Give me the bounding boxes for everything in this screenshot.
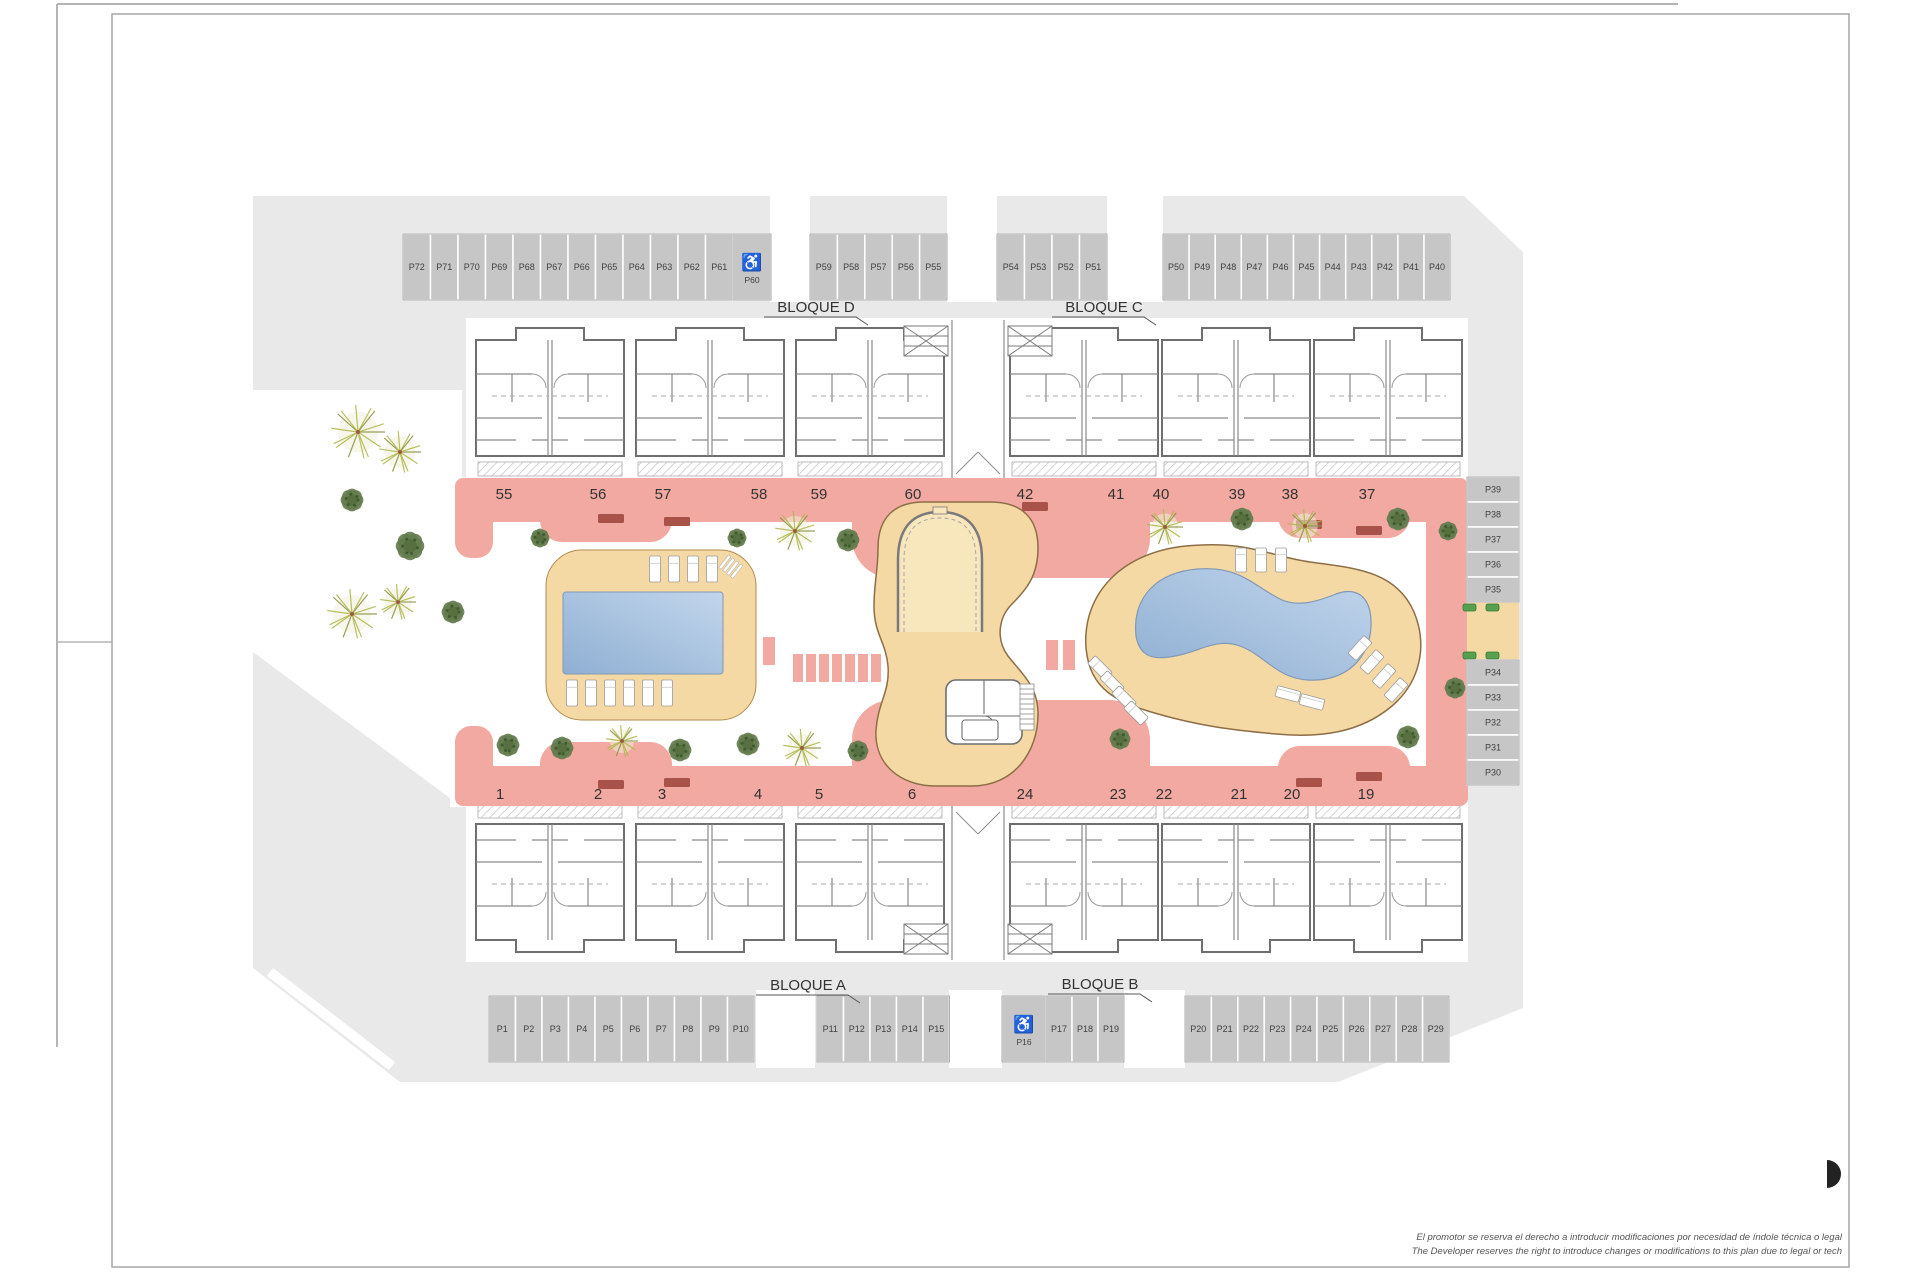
tree-speckle	[1235, 516, 1238, 519]
parking-stall-label: P54	[1003, 262, 1019, 272]
parking-stall-label: P60	[744, 275, 759, 285]
hedge	[1463, 652, 1476, 659]
tree-speckle	[1243, 523, 1246, 526]
tree-speckle	[1450, 526, 1453, 529]
parking-stall-label: P23	[1269, 1024, 1285, 1034]
parking-stall-label: P15	[928, 1024, 944, 1034]
walkway-top-endcap	[455, 478, 493, 558]
sun-lounger	[669, 556, 680, 582]
hedge	[1486, 652, 1499, 659]
tree-speckle	[850, 534, 853, 537]
tree-speckle	[740, 534, 743, 537]
unit-number: 20	[1284, 786, 1301, 803]
tree-speckle	[566, 748, 569, 751]
tree-speckle	[1409, 741, 1412, 744]
parking-stall-label: P3	[550, 1024, 561, 1034]
unit-number: 60	[905, 486, 922, 503]
apartment-unit-module-use	[636, 824, 784, 952]
parking-stall-label: P34	[1485, 668, 1501, 678]
tree-speckle	[1448, 686, 1451, 689]
apartment-unit-module	[476, 328, 624, 456]
parking-group-top-c: P54P53P52P51	[997, 234, 1107, 300]
disclaimer-line-en: The Developer reserves the right to intr…	[1412, 1245, 1842, 1259]
tree-speckle	[1391, 516, 1394, 519]
parking-stall-label: P2	[523, 1024, 534, 1034]
arched-court-gate	[933, 507, 947, 514]
parking-stall-label: P38	[1485, 510, 1501, 520]
parking-stall-label: P41	[1403, 262, 1419, 272]
terrace-strip	[798, 804, 942, 818]
tree-speckle	[1401, 734, 1404, 737]
tree-speckle	[1113, 738, 1116, 741]
parking-stall-label: P47	[1246, 262, 1262, 272]
stepping-stone	[819, 654, 829, 682]
tree-speckle	[1452, 681, 1455, 684]
tree-dark-icon	[1397, 726, 1420, 749]
tree-dark-icon	[737, 733, 760, 756]
sun-lounger-rect	[643, 680, 654, 706]
tree-speckle	[684, 750, 687, 753]
stairs-box	[1020, 684, 1034, 730]
parking-stall-label: P7	[656, 1024, 667, 1034]
tree-speckle	[1442, 530, 1445, 533]
tree-speckle	[1399, 523, 1402, 526]
stair-shaft	[904, 326, 948, 356]
parking-stall-label: P51	[1085, 262, 1101, 272]
tree-dark-icon	[848, 741, 869, 762]
terrace-strip	[638, 462, 782, 476]
tree-speckle	[862, 751, 865, 754]
parking-stall-label: P48	[1220, 262, 1236, 272]
parking-stall-label: P17	[1051, 1024, 1067, 1034]
site-plan-drawing: P72P71P70P69P68P67P66P65P64P63P62P61♿P60…	[0, 0, 1920, 1280]
stair-shaft	[1008, 326, 1052, 356]
tree-speckle	[458, 611, 461, 614]
sun-lounger	[586, 680, 597, 706]
tree-dark-icon	[837, 529, 860, 552]
parking-stall-label: P66	[574, 262, 590, 272]
bench	[664, 778, 690, 787]
hedge	[1463, 604, 1476, 611]
sun-lounger	[662, 680, 673, 706]
sun-lounger-rect	[650, 556, 661, 582]
parking-stall-label: P72	[409, 262, 425, 272]
parking-stall-label: P6	[629, 1024, 640, 1034]
tree-speckle	[1116, 733, 1119, 736]
sun-lounger	[605, 680, 616, 706]
tree-speckle	[504, 738, 507, 741]
parking-stall-label: P14	[902, 1024, 918, 1034]
tree-speckle	[1247, 518, 1250, 521]
pool-house-stairs	[1020, 684, 1034, 730]
parking-group-bottom-b: P11P12P13P14P15	[817, 996, 950, 1062]
tree-speckle	[542, 533, 545, 536]
tree-speckle	[851, 749, 854, 752]
stair-shaft	[1008, 924, 1052, 954]
parking-stall-label: P8	[682, 1024, 693, 1034]
tree-speckle	[405, 551, 408, 554]
parking-stall-label: P52	[1058, 262, 1074, 272]
sun-lounger-rect	[567, 680, 578, 706]
unit-number: 58	[751, 486, 768, 503]
entrance-corridor	[952, 806, 1004, 960]
tree-speckle	[508, 749, 511, 752]
sun-lounger	[688, 556, 699, 582]
tree-speckle	[682, 744, 685, 747]
bench	[664, 517, 690, 526]
tree-speckle	[745, 737, 748, 740]
tree-speckle	[504, 749, 507, 752]
tree-speckle	[743, 748, 746, 751]
driveway-gap	[770, 196, 810, 302]
tree-speckle	[558, 741, 561, 744]
tree-dark-icon	[669, 739, 692, 762]
parking-stall-label: P12	[849, 1024, 865, 1034]
terrace-strip	[1164, 804, 1308, 818]
terrace-strip	[1164, 462, 1308, 476]
unit-number: 56	[590, 486, 607, 503]
tree-trunk	[396, 600, 400, 604]
hedge	[1486, 604, 1499, 611]
tree-speckle	[1403, 740, 1406, 743]
tree-speckle	[543, 538, 546, 541]
tree-speckle	[676, 754, 679, 757]
parking-stall-label: P5	[603, 1024, 614, 1034]
unit-number: 41	[1108, 486, 1125, 503]
parking-stall-label: P65	[601, 262, 617, 272]
parking-stall-label: P26	[1349, 1024, 1365, 1034]
parking-stall-label: P9	[709, 1024, 720, 1034]
tree-speckle	[741, 742, 744, 745]
parking-group-bottom-d: P20P21P22P23P24P25P26P27P28P29	[1185, 996, 1449, 1062]
parking-stall-label: P21	[1217, 1024, 1233, 1034]
apartment-unit-module	[1162, 824, 1310, 952]
tree-trunk	[356, 430, 360, 434]
tree-dark-icon	[341, 489, 364, 512]
parking-stall-label: P59	[816, 262, 832, 272]
tree-speckle	[454, 616, 457, 619]
tree-speckle	[401, 545, 404, 548]
tree-speckle	[413, 539, 416, 542]
driveway-gap	[756, 990, 815, 1068]
tree-trunk	[620, 739, 624, 743]
tree-speckle	[673, 749, 676, 752]
tree-dark-icon	[1387, 508, 1410, 531]
parking-stall-label: P53	[1030, 262, 1046, 272]
parking-stall-label: P24	[1296, 1024, 1312, 1034]
tree-speckle	[676, 743, 679, 746]
bench	[1022, 502, 1048, 511]
tree-speckle	[349, 493, 352, 496]
parking-stall-label: P71	[436, 262, 452, 272]
apartment-unit-module	[1314, 824, 1462, 952]
tree-speckle	[450, 605, 453, 608]
parking-stall-label: P39	[1485, 485, 1501, 495]
tree-speckle	[751, 738, 754, 741]
parking-group-bottom-access: ♿P16	[1002, 996, 1046, 1062]
unit-number: 37	[1359, 486, 1376, 503]
bench	[1356, 772, 1382, 781]
parking-stall-label: P43	[1351, 262, 1367, 272]
tree-dark-icon	[497, 734, 520, 757]
parking-stall-label: P4	[576, 1024, 587, 1034]
bench	[1356, 526, 1382, 535]
left-pool	[563, 592, 723, 674]
unit-number: 22	[1156, 786, 1173, 803]
parking-stall-label: P1	[497, 1024, 508, 1034]
parking-stall-label: P33	[1485, 693, 1501, 703]
tree-speckle	[501, 744, 504, 747]
sun-lounger-rect	[707, 556, 718, 582]
tree-speckle	[534, 536, 537, 539]
block-label-bloque-a: BLOQUE A	[770, 977, 846, 994]
apartment-unit-module-use	[1314, 824, 1462, 952]
stepping-stone	[806, 654, 816, 682]
tree-speckle	[1401, 514, 1404, 517]
tree-speckle	[1444, 534, 1447, 537]
tree-speckle	[347, 503, 350, 506]
tree-trunk	[350, 612, 354, 616]
tree-speckle	[1448, 534, 1451, 537]
unit-number: 59	[811, 486, 828, 503]
sun-lounger-rect	[669, 556, 680, 582]
stepping-stone	[871, 654, 881, 682]
tree-speckle	[541, 541, 544, 544]
parking-stall-label: P61	[711, 262, 727, 272]
parking-stall-label: P29	[1428, 1024, 1444, 1034]
tree-speckle	[750, 748, 753, 751]
tree-speckle	[1451, 531, 1454, 534]
parking-stall-label: P67	[546, 262, 562, 272]
parking-stall-label: P10	[733, 1024, 749, 1034]
sun-lounger	[624, 680, 635, 706]
tree-speckle	[536, 541, 539, 544]
sun-lounger-rect	[688, 556, 699, 582]
tree-speckle	[345, 497, 348, 500]
tree-speckle	[1395, 512, 1398, 515]
sun-lounger-rect	[624, 680, 635, 706]
tree-speckle	[855, 744, 858, 747]
tree-speckle	[1411, 732, 1414, 735]
tree-dark-icon	[1231, 508, 1254, 531]
terrace-strip	[1316, 462, 1460, 476]
stepping-stone	[1046, 640, 1058, 670]
tree-trunk	[800, 746, 804, 750]
tree-speckle	[859, 754, 862, 757]
parking-stall-label: P32	[1485, 718, 1501, 728]
tree-dark-icon	[396, 532, 425, 561]
unit-number: 40	[1153, 486, 1170, 503]
tree-dark-icon	[1439, 522, 1458, 541]
stepping-stone	[858, 654, 868, 682]
tree-trunk	[793, 529, 797, 533]
terrace-strip	[478, 804, 622, 818]
unit-number: 19	[1358, 786, 1375, 803]
parking-stall-label: P28	[1401, 1024, 1417, 1034]
parking-stall-label: P30	[1485, 768, 1501, 778]
parking-stall-label: P45	[1299, 262, 1315, 272]
driveway-gap	[1107, 196, 1163, 302]
stepping-stone	[1063, 640, 1075, 670]
tree-speckle	[1444, 525, 1447, 528]
tree-speckle	[841, 539, 844, 542]
arched-court	[898, 512, 982, 632]
sun-lounger-rect	[1256, 548, 1267, 572]
parking-group-top-b: P59P58P57P56P55	[810, 234, 947, 300]
parking-stall-label: P63	[656, 262, 672, 272]
sun-lounger	[1256, 548, 1267, 572]
tree-speckle	[446, 609, 449, 612]
parking-stall-label: P37	[1485, 535, 1501, 545]
parking-stall-label: P68	[519, 262, 535, 272]
parking-stall-label: P69	[491, 262, 507, 272]
parking-stall-label: P31	[1485, 743, 1501, 753]
tree-dark-icon	[728, 529, 747, 548]
parking-stall-label: P42	[1377, 262, 1393, 272]
tree-speckle	[1451, 691, 1454, 694]
tree-speckle	[1122, 733, 1125, 736]
parking-stall-label: P22	[1243, 1024, 1259, 1034]
terrace-strip	[1012, 462, 1156, 476]
parking-stall-label: P16	[1016, 1037, 1031, 1047]
unit-number: 6	[908, 786, 916, 803]
parking-stall-label: P50	[1168, 262, 1184, 272]
tree-speckle	[1393, 522, 1396, 525]
stepping-stone	[832, 654, 842, 682]
terrace-strip	[798, 462, 942, 476]
unit-number: 1	[496, 786, 504, 803]
sun-lounger	[1236, 548, 1247, 572]
tree-speckle	[562, 752, 565, 755]
unit-number: 5	[815, 786, 823, 803]
sun-lounger-rect	[586, 680, 597, 706]
stair-shaft	[904, 924, 948, 954]
tree-speckle	[416, 546, 419, 549]
tree-speckle	[1120, 743, 1123, 746]
apartment-unit-module	[636, 824, 784, 952]
tree-speckle	[456, 607, 459, 610]
tree-speckle	[1124, 739, 1127, 742]
terrace-strip	[478, 462, 622, 476]
site-plan-page: P72P71P70P69P68P67P66P65P64P63P62P61♿P60…	[0, 0, 1920, 1280]
walkway-bottom-endcap	[455, 726, 493, 806]
unit-number: 24	[1017, 786, 1034, 803]
unit-number: 57	[655, 486, 672, 503]
unit-number: 3	[658, 786, 666, 803]
parking-stall-label: P62	[684, 262, 700, 272]
tree-speckle	[735, 532, 738, 535]
unit-number: 39	[1229, 486, 1246, 503]
tree-trunk	[1303, 524, 1307, 528]
stepping-stone	[845, 654, 855, 682]
pool-house-room	[962, 720, 998, 740]
sun-lounger-rect	[662, 680, 673, 706]
apartment-unit-module-use	[1162, 824, 1310, 952]
tree-speckle	[1116, 743, 1119, 746]
sun-lounger	[650, 556, 661, 582]
driveway-gap	[947, 196, 997, 302]
driveway-gap	[1124, 990, 1185, 1068]
tree-dark-icon	[1110, 729, 1131, 750]
parking-stall-label: P58	[843, 262, 859, 272]
tree-speckle	[738, 541, 741, 544]
tree-speckle	[512, 745, 515, 748]
parking-stall-label: P40	[1429, 262, 1445, 272]
apartment-unit-module	[1162, 328, 1310, 456]
parking-stall-label: P49	[1194, 262, 1210, 272]
tree-speckle	[848, 544, 851, 547]
driveway-gap	[949, 990, 1002, 1068]
terrace-strip	[1012, 804, 1156, 818]
parking-group-top-a-access: ♿P60	[733, 234, 771, 300]
parking-stall-label: P44	[1325, 262, 1341, 272]
tree-speckle	[854, 754, 857, 757]
tree-speckle	[555, 747, 558, 750]
tree-speckle	[680, 754, 683, 757]
sun-lounger	[567, 680, 578, 706]
tree-trunk	[398, 450, 402, 454]
tree-speckle	[353, 504, 356, 507]
tree-speckle	[860, 746, 863, 749]
tree-speckle	[564, 742, 567, 745]
tree-speckle	[1239, 512, 1242, 515]
parking-stall-label: P55	[925, 262, 941, 272]
parking-stall-label: P46	[1272, 262, 1288, 272]
tree-dark-icon	[442, 601, 465, 624]
parking-stall-label: P35	[1485, 585, 1501, 595]
parking-stall-label: P19	[1103, 1024, 1119, 1034]
tree-speckle	[1237, 522, 1240, 525]
unit-number: 42	[1017, 486, 1034, 503]
parking-stall-label: P70	[464, 262, 480, 272]
parking-stall-label: P56	[898, 262, 914, 272]
unit-number: 2	[594, 786, 602, 803]
parking-stall-label: P20	[1190, 1024, 1206, 1034]
tree-speckle	[844, 544, 847, 547]
stepping-stone	[763, 637, 775, 665]
disclaimer-line-es: El promotor se reserva el derecho a intr…	[1412, 1231, 1842, 1245]
sun-lounger-rect	[605, 680, 616, 706]
parking-stall-label: P25	[1322, 1024, 1338, 1034]
tree-speckle	[510, 739, 513, 742]
tree-trunk	[1163, 525, 1167, 529]
tree-speckle	[537, 532, 540, 535]
tree-speckle	[844, 533, 847, 536]
unit-number: 38	[1282, 486, 1299, 503]
tree-speckle	[1456, 691, 1459, 694]
tree-speckle	[852, 540, 855, 543]
tree-speckle	[732, 540, 735, 543]
unit-number: 55	[496, 486, 513, 503]
parking-stall-label: P64	[629, 262, 645, 272]
wheelchair-icon: ♿	[741, 252, 762, 272]
tree-speckle	[1403, 518, 1406, 521]
parking-stall-label: P27	[1375, 1024, 1391, 1034]
tree-speckle	[355, 495, 358, 498]
parking-stall-label: P57	[870, 262, 886, 272]
parking-group-right-upper: P39P38P37P36P35	[1467, 477, 1519, 602]
parking-group-bottom-a: P1P2P3P4P5P6P7P8P9P10	[489, 996, 754, 1062]
apartment-unit-module	[1314, 328, 1462, 456]
tree-speckle	[1405, 730, 1408, 733]
apartment-unit-module	[636, 328, 784, 456]
terrace-strip	[638, 804, 782, 818]
tree-speckle	[410, 552, 413, 555]
unit-number: 4	[754, 786, 762, 803]
apartment-unit-module	[476, 824, 624, 952]
tree-dark-icon	[1445, 678, 1466, 699]
wheelchair-icon: ♿	[1013, 1014, 1034, 1034]
